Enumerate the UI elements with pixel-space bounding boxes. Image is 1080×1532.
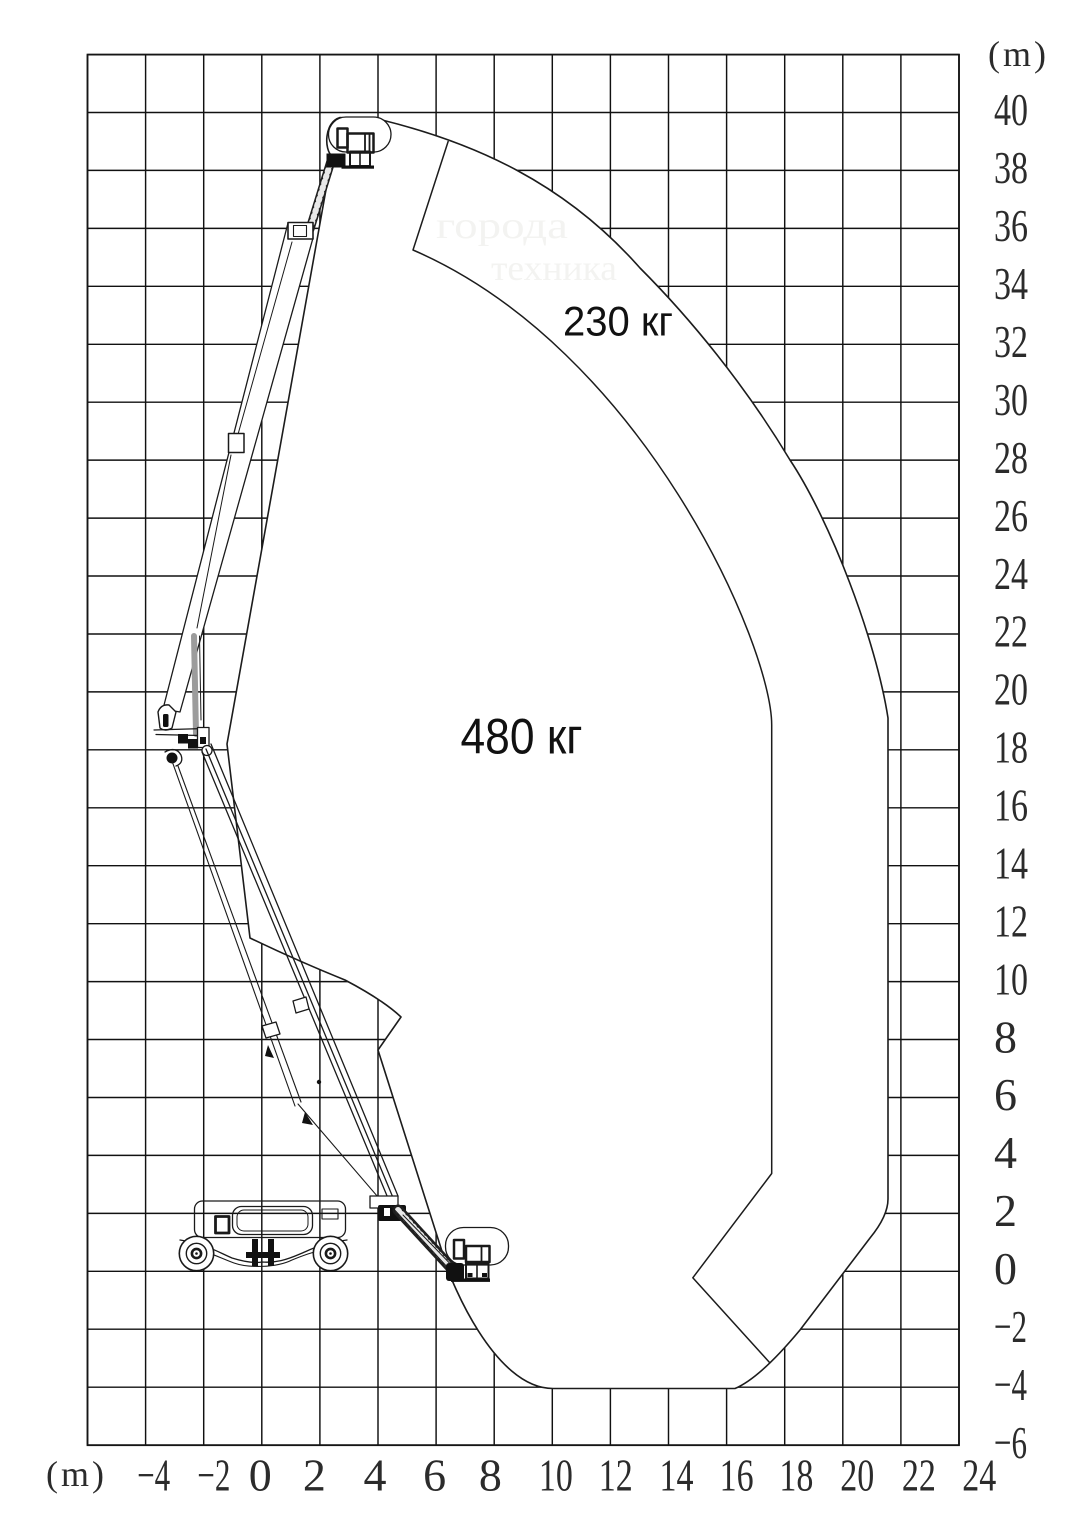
svg-text:14: 14 [660,1450,694,1501]
svg-text:22: 22 [902,1450,936,1501]
svg-text:480 кг: 480 кг [461,709,583,765]
svg-text:230 кг: 230 кг [563,298,673,345]
svg-text:16: 16 [720,1450,754,1501]
svg-text:0: 0 [994,1243,1017,1294]
svg-text:20: 20 [994,664,1028,715]
svg-text:24: 24 [994,548,1028,599]
svg-text:техника: техника [491,248,617,288]
svg-text:36: 36 [994,200,1028,251]
svg-text:−4: −4 [137,1450,170,1501]
svg-text:28: 28 [994,432,1028,483]
svg-text:(m): (m) [46,1454,107,1494]
svg-text:10: 10 [539,1450,573,1501]
svg-text:20: 20 [840,1450,874,1501]
svg-text:26: 26 [994,490,1028,541]
svg-text:10: 10 [994,953,1028,1004]
svg-text:38: 38 [994,142,1028,193]
svg-text:6: 6 [994,1069,1017,1120]
svg-text:−6: −6 [994,1417,1027,1468]
svg-text:4: 4 [994,1127,1017,1178]
svg-text:−2: −2 [197,1450,230,1501]
svg-text:−4: −4 [994,1359,1027,1410]
svg-text:(m): (m) [988,34,1049,74]
svg-text:14: 14 [994,838,1028,889]
svg-text:12: 12 [599,1450,633,1501]
svg-text:18: 18 [994,722,1028,773]
svg-text:4: 4 [364,1450,387,1501]
svg-text:2: 2 [303,1450,326,1501]
svg-text:18: 18 [779,1450,813,1501]
svg-text:30: 30 [994,374,1028,425]
svg-text:8: 8 [479,1450,502,1501]
svg-text:22: 22 [994,606,1028,657]
svg-text:0: 0 [249,1450,272,1501]
svg-text:12: 12 [994,895,1028,946]
svg-text:34: 34 [994,258,1028,309]
svg-text:16: 16 [994,780,1028,831]
svg-text:8: 8 [994,1011,1017,1062]
svg-text:24: 24 [962,1450,996,1501]
svg-text:32: 32 [994,316,1028,367]
svg-text:40: 40 [994,84,1028,135]
svg-text:2: 2 [994,1185,1017,1236]
svg-text:города: города [436,205,568,247]
svg-text:6: 6 [423,1450,446,1501]
svg-text:−2: −2 [994,1301,1027,1352]
